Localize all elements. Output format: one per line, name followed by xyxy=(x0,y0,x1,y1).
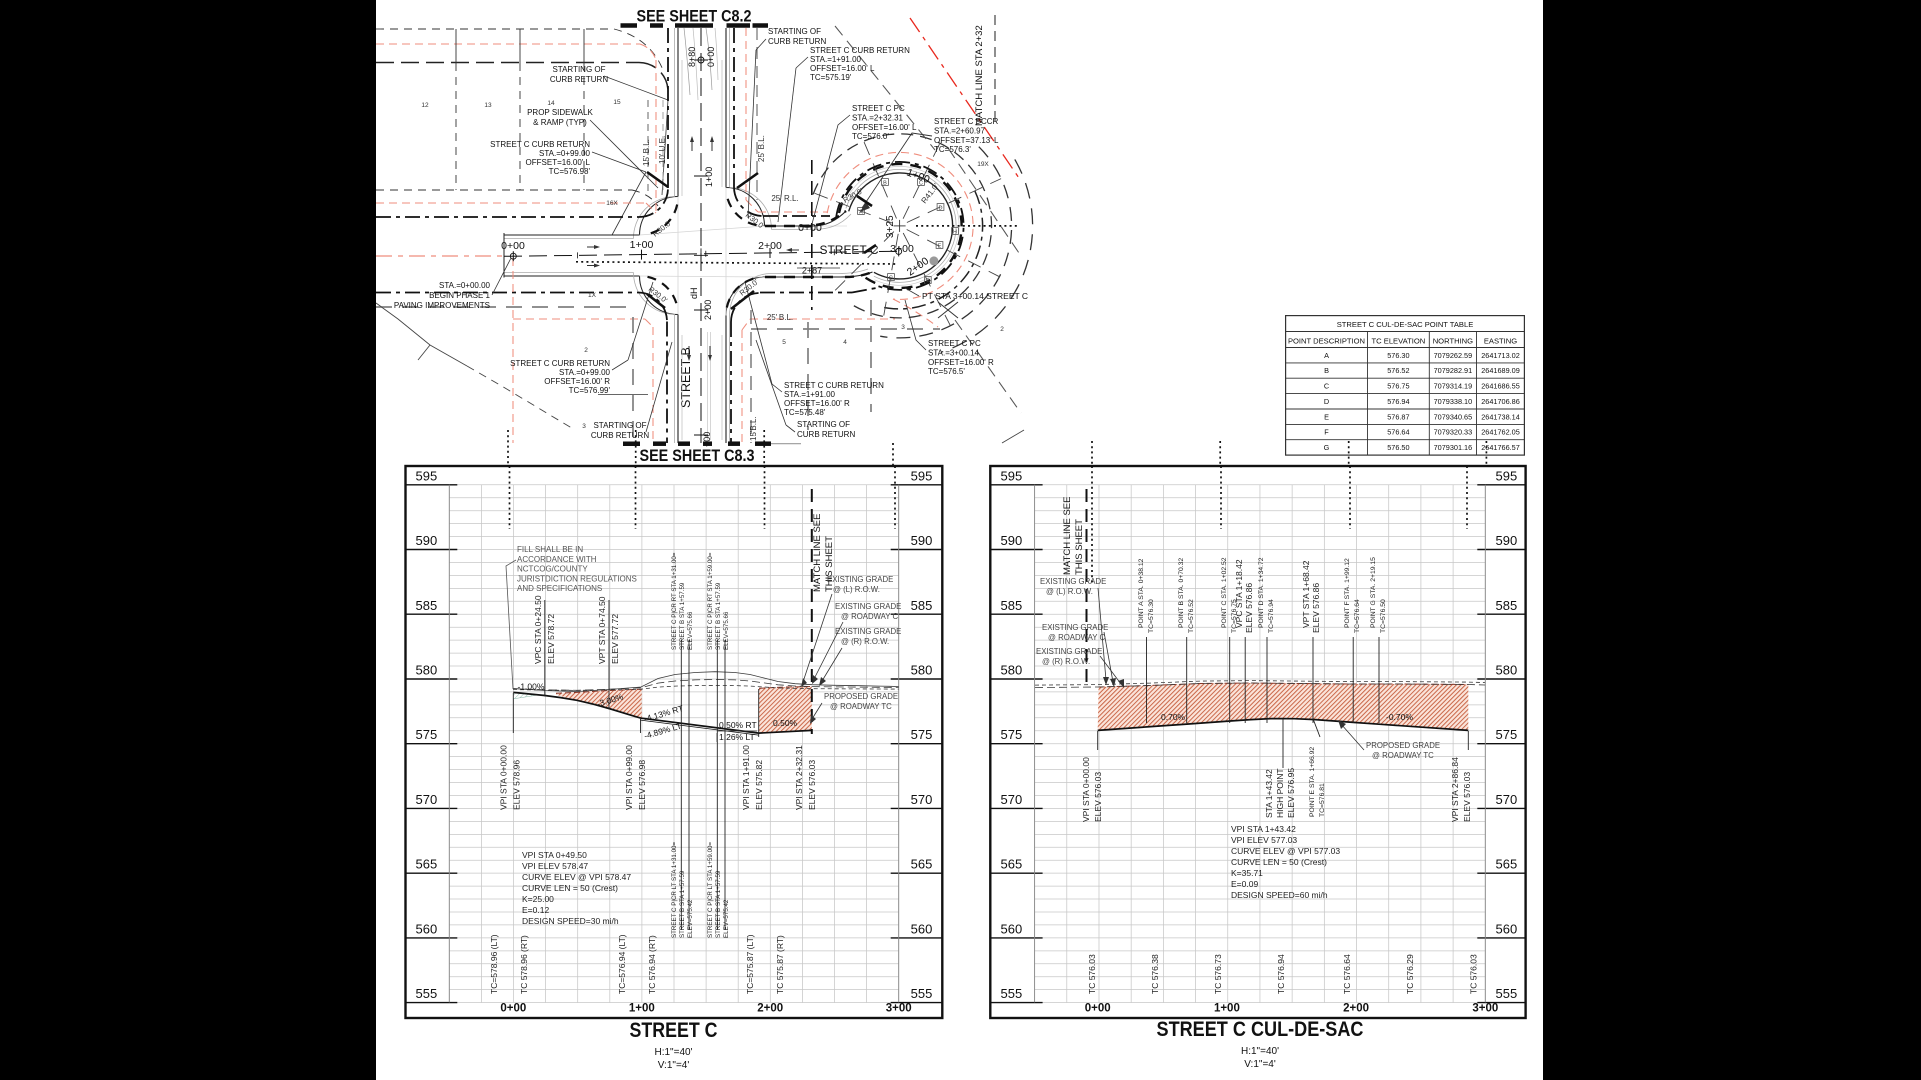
svg-text:585: 585 xyxy=(1001,598,1023,613)
svg-text:3: 3 xyxy=(582,423,586,430)
svg-text:CURVE ELEV @ VPI 577.03: CURVE ELEV @ VPI 577.03 xyxy=(1231,846,1340,856)
svg-text:STA.=1+91.00: STA.=1+91.00 xyxy=(784,390,836,399)
svg-text:585: 585 xyxy=(911,598,933,613)
svg-text:C: C xyxy=(1324,382,1329,391)
svg-text:CURB RETURN: CURB RETURN xyxy=(591,431,649,440)
svg-text:-0.70%: -0.70% xyxy=(1386,712,1413,722)
svg-text:TC=576.50: TC=576.50 xyxy=(1380,599,1387,633)
svg-text:3+00: 3+00 xyxy=(1472,1003,1498,1015)
svg-text:570: 570 xyxy=(1001,792,1023,807)
svg-text:H:1"=40': H:1"=40' xyxy=(655,1047,693,1058)
svg-text:TC=576.52: TC=576.52 xyxy=(1188,599,1195,633)
svg-text:570: 570 xyxy=(416,792,438,807)
svg-text:VPI STA 0+00.00: VPI STA 0+00.00 xyxy=(1081,757,1091,822)
svg-text:7079314.19: 7079314.19 xyxy=(1434,382,1473,391)
svg-text:@ ROADWAY C: @ ROADWAY C xyxy=(1048,633,1106,642)
svg-text:555: 555 xyxy=(1001,986,1023,1001)
svg-text:575: 575 xyxy=(911,727,933,742)
svg-text:580: 580 xyxy=(416,663,438,678)
svg-text:TC=576.94: TC=576.94 xyxy=(1268,599,1275,633)
svg-text:ELEV=575.42: ELEV=575.42 xyxy=(723,899,730,938)
svg-text:560: 560 xyxy=(1496,921,1518,936)
svg-text:VPI STA 0+00.00: VPI STA 0+00.00 xyxy=(499,745,509,810)
svg-text:CURB RETURN: CURB RETURN xyxy=(768,37,826,46)
svg-text:DESIGN SPEED=60 mi/h: DESIGN SPEED=60 mi/h xyxy=(1231,890,1328,900)
svg-text:VPI STA 1+91.00: VPI STA 1+91.00 xyxy=(741,745,751,810)
svg-text:7079320.33: 7079320.33 xyxy=(1434,428,1473,437)
svg-text:STREET B STA 1+57.59: STREET B STA 1+57.59 xyxy=(679,870,686,938)
svg-text:SEE SHEET C8.2: SEE SHEET C8.2 xyxy=(637,8,752,26)
svg-text:580: 580 xyxy=(911,663,933,678)
svg-text:G: G xyxy=(1324,443,1330,452)
svg-text:STREET C CURB RETURN: STREET C CURB RETURN xyxy=(490,140,590,149)
svg-text:576.64: 576.64 xyxy=(1387,428,1409,437)
svg-text:2641689.09: 2641689.09 xyxy=(1481,366,1520,375)
svg-text:TC=578.96 (LT): TC=578.96 (LT) xyxy=(489,934,499,994)
svg-text:VPC STA 0+24.50: VPC STA 0+24.50 xyxy=(533,595,543,664)
svg-text:STREET B: STREET B xyxy=(679,347,693,408)
svg-text:PROPOSED GRADE: PROPOSED GRADE xyxy=(824,692,898,701)
svg-text:576.94: 576.94 xyxy=(1387,397,1409,406)
svg-text:570: 570 xyxy=(911,792,933,807)
svg-text:595: 595 xyxy=(911,468,933,483)
svg-text:MATCH LINE SEE: MATCH LINE SEE xyxy=(812,514,823,592)
svg-text:555: 555 xyxy=(1496,986,1518,1001)
svg-text:STREET B STA 1+57.59: STREET B STA 1+57.59 xyxy=(715,582,722,650)
svg-text:1+00: 1+00 xyxy=(629,1003,655,1015)
svg-text:576.52: 576.52 xyxy=(1387,366,1409,375)
svg-text:STREET C P|CR LT STA 1+31.00=: STREET C P|CR LT STA 1+31.00= xyxy=(671,842,678,938)
svg-text:TC=576.3': TC=576.3' xyxy=(934,145,971,154)
svg-text:ELEV 578.96: ELEV 578.96 xyxy=(512,760,522,810)
svg-text:7079338.10: 7079338.10 xyxy=(1434,397,1473,406)
svg-text:TC 576.03: TC 576.03 xyxy=(1087,954,1097,994)
svg-text:TC=576.0': TC=576.0' xyxy=(852,132,889,141)
svg-text:15: 15 xyxy=(613,99,621,106)
svg-text:2+00: 2+00 xyxy=(758,240,782,252)
svg-text:ELEV 576.03: ELEV 576.03 xyxy=(1093,772,1103,822)
svg-text:3+25: 3+25 xyxy=(885,215,896,238)
svg-text:EASTING: EASTING xyxy=(1484,337,1517,346)
svg-text:VPI ELEV 577.03: VPI ELEV 577.03 xyxy=(1231,835,1297,845)
svg-text:576.75: 576.75 xyxy=(1387,382,1409,391)
svg-text:H:1"=40': H:1"=40' xyxy=(1241,1046,1279,1057)
svg-text:OFFSET=16.00' R: OFFSET=16.00' R xyxy=(928,358,994,367)
svg-text:560: 560 xyxy=(1001,921,1023,936)
svg-text:VPI STA 0+49.50: VPI STA 0+49.50 xyxy=(522,850,587,860)
svg-text:ELEV 575.82: ELEV 575.82 xyxy=(754,760,764,810)
svg-text:15' B.L.: 15' B.L. xyxy=(642,139,651,166)
svg-text:E=0.09: E=0.09 xyxy=(1231,879,1258,889)
svg-text:POINT D STA. 1+34.72: POINT D STA. 1+34.72 xyxy=(1258,557,1265,628)
svg-text:PAVING IMPROVEMENTS: PAVING IMPROVEMENTS xyxy=(394,301,490,310)
svg-text:STREET C P|CR RT STA 1+31.00=: STREET C P|CR RT STA 1+31.00= xyxy=(671,552,678,650)
svg-text:V:1"=4': V:1"=4' xyxy=(658,1060,690,1071)
svg-text:2: 2 xyxy=(584,347,588,354)
svg-text:0+00: 0+00 xyxy=(501,240,525,252)
svg-text:0+00: 0+00 xyxy=(798,222,822,234)
svg-text:555: 555 xyxy=(911,986,933,1001)
svg-text:0.50% RT: 0.50% RT xyxy=(719,720,757,730)
svg-text:1X: 1X xyxy=(588,292,597,299)
svg-text:ELEV 576.03: ELEV 576.03 xyxy=(1462,772,1472,822)
svg-text:EXISTING GRADE: EXISTING GRADE xyxy=(1040,577,1106,586)
svg-text:CURB RETURN: CURB RETURN xyxy=(797,430,855,439)
svg-text:THIS SHEET: THIS SHEET xyxy=(1074,519,1085,575)
svg-text:ELEV 578.72: ELEV 578.72 xyxy=(546,614,556,664)
svg-text:STREET C CURB RETURN: STREET C CURB RETURN xyxy=(784,381,884,390)
svg-text:TC 576.94: TC 576.94 xyxy=(1276,954,1286,994)
svg-text:VPC STA 1+18.42: VPC STA 1+18.42 xyxy=(1234,559,1244,628)
svg-text:TC=576.99': TC=576.99' xyxy=(569,386,611,395)
svg-text:STREET C: STREET C xyxy=(630,1019,718,1042)
svg-text:D: D xyxy=(939,205,943,211)
svg-text:BEGIN PHASE 1: BEGIN PHASE 1 xyxy=(429,291,490,300)
svg-text:STA 1+43.42: STA 1+43.42 xyxy=(1264,769,1274,818)
svg-text:2641762.05: 2641762.05 xyxy=(1481,428,1520,437)
svg-text:SEE SHEET C8.3: SEE SHEET C8.3 xyxy=(640,447,755,465)
svg-text:2+00: 2+00 xyxy=(1343,1003,1369,1015)
svg-text:EXISTING GRADE: EXISTING GRADE xyxy=(827,575,893,584)
svg-text:OFFSET=16.00' L: OFFSET=16.00' L xyxy=(810,64,875,73)
svg-text:ELEV 576.86: ELEV 576.86 xyxy=(1244,583,1254,633)
svg-text:565: 565 xyxy=(1001,857,1023,872)
svg-text:POINT DESCRIPTION: POINT DESCRIPTION xyxy=(1288,337,1365,346)
svg-text:STA.=2+60.97: STA.=2+60.97 xyxy=(934,127,986,136)
svg-text:4: 4 xyxy=(843,339,847,346)
svg-text:DESIGN SPEED=30 mi/h: DESIGN SPEED=30 mi/h xyxy=(522,916,619,926)
svg-text:8+80: 8+80 xyxy=(687,47,697,67)
svg-text:576.30: 576.30 xyxy=(1387,351,1409,360)
svg-text:12: 12 xyxy=(421,102,429,109)
svg-text:STA.=3+00.14: STA.=3+00.14 xyxy=(928,349,980,358)
svg-text:-1.00%: -1.00% xyxy=(518,682,545,692)
svg-text:STARTING OF: STARTING OF xyxy=(797,420,850,429)
svg-text:25' B.L.: 25' B.L. xyxy=(757,135,766,162)
svg-text:3+00: 3+00 xyxy=(890,243,914,255)
svg-text:1+00: 1+00 xyxy=(704,167,714,187)
svg-text:TC=576.5': TC=576.5' xyxy=(928,367,965,376)
svg-text:STREET C CURB RETURN: STREET C CURB RETURN xyxy=(810,46,910,55)
svg-text:TC=575.19': TC=575.19' xyxy=(810,73,852,82)
svg-text:585: 585 xyxy=(1496,598,1518,613)
svg-text:595: 595 xyxy=(1496,468,1518,483)
svg-text:OFFSET=16.00' L: OFFSET=16.00' L xyxy=(852,123,917,132)
svg-text:TC 576.73: TC 576.73 xyxy=(1213,954,1223,994)
svg-text:OFFSET=37.13' L: OFFSET=37.13' L xyxy=(934,136,999,145)
svg-text:576.87: 576.87 xyxy=(1387,412,1409,421)
svg-text:@ ROADWAY C: @ ROADWAY C xyxy=(841,612,899,621)
svg-text:@ (L) R.O.W.: @ (L) R.O.W. xyxy=(1046,587,1093,596)
svg-text:F: F xyxy=(1324,428,1329,437)
svg-text:590: 590 xyxy=(1496,533,1518,548)
svg-text:TC=576.64: TC=576.64 xyxy=(1354,599,1361,633)
svg-text:3+00: 3+00 xyxy=(886,1003,912,1015)
svg-text:VPI STA 0+99.00: VPI STA 0+99.00 xyxy=(624,745,634,810)
svg-text:595: 595 xyxy=(416,468,438,483)
svg-text:TC=576.94 (LT): TC=576.94 (LT) xyxy=(617,934,627,994)
svg-text:POINT B STA. 0+70.32: POINT B STA. 0+70.32 xyxy=(1178,558,1185,628)
svg-text:STA.=1+91.00: STA.=1+91.00 xyxy=(810,55,862,64)
svg-text:14: 14 xyxy=(547,100,555,107)
svg-text:TC 576.29: TC 576.29 xyxy=(1405,954,1415,994)
svg-text:STARTING OF: STARTING OF xyxy=(768,27,821,36)
svg-text:575: 575 xyxy=(1001,727,1023,742)
svg-text:POINT E STA. 1+66.92: POINT E STA. 1+66.92 xyxy=(1309,747,1316,817)
svg-text:E: E xyxy=(938,243,942,249)
svg-text:ELEV 577.72: ELEV 577.72 xyxy=(610,614,620,664)
svg-text:575: 575 xyxy=(1496,727,1518,742)
svg-text:STA.=2+32.31: STA.=2+32.31 xyxy=(852,114,904,123)
svg-text:& RAMP (TYP): & RAMP (TYP) xyxy=(533,118,587,127)
svg-text:13: 13 xyxy=(484,102,492,109)
svg-text:STARTING OF: STARTING OF xyxy=(593,421,646,430)
svg-text:AND SPECIFICATIONS: AND SPECIFICATIONS xyxy=(517,584,602,593)
svg-text:19X: 19X xyxy=(977,161,989,168)
svg-text:0.70%: 0.70% xyxy=(1161,712,1186,722)
svg-text:3: 3 xyxy=(901,324,905,331)
svg-text:VPI STA 2+86.84: VPI STA 2+86.84 xyxy=(1450,757,1460,822)
svg-text:STREET C PC: STREET C PC xyxy=(928,339,981,348)
svg-text:TC 576.03: TC 576.03 xyxy=(1469,954,1479,994)
svg-text:25' B.L.: 25' B.L. xyxy=(767,313,793,322)
svg-text:STREET C PC: STREET C PC xyxy=(852,104,905,113)
svg-text:@ ROADWAY TC: @ ROADWAY TC xyxy=(830,702,892,711)
svg-text:2+00: 2+00 xyxy=(703,300,713,320)
svg-text:0+00: 0+00 xyxy=(1085,1003,1111,1015)
svg-text:TC 575.87 (RT): TC 575.87 (RT) xyxy=(775,935,785,994)
svg-text:2: 2 xyxy=(1000,326,1004,333)
svg-text:TC=575.87 (LT): TC=575.87 (LT) xyxy=(745,934,755,994)
svg-text:A: A xyxy=(1324,351,1329,360)
svg-text:555: 555 xyxy=(416,986,438,1001)
svg-text:10' U.E.: 10' U.E. xyxy=(658,136,667,164)
svg-text:E: E xyxy=(1324,412,1329,421)
svg-text:TC=576.81: TC=576.81 xyxy=(1319,783,1326,817)
svg-text:PROPOSED GRADE: PROPOSED GRADE xyxy=(1366,741,1440,750)
svg-text:K=35.71: K=35.71 xyxy=(1231,868,1263,878)
svg-text:7079340.65: 7079340.65 xyxy=(1434,412,1473,421)
svg-text:@ (R) R.O.W.: @ (R) R.O.W. xyxy=(1042,657,1090,666)
svg-text:EXISTING GRADE: EXISTING GRADE xyxy=(1036,647,1102,656)
svg-text:2641686.55: 2641686.55 xyxy=(1481,382,1520,391)
svg-text:560: 560 xyxy=(416,921,438,936)
svg-text:590: 590 xyxy=(911,533,933,548)
svg-text:ELEV=575.42: ELEV=575.42 xyxy=(687,899,694,938)
svg-text:565: 565 xyxy=(416,857,438,872)
svg-text:B: B xyxy=(1324,366,1329,375)
svg-text:TC 576.94 (RT): TC 576.94 (RT) xyxy=(647,935,657,994)
svg-text:2641713.02: 2641713.02 xyxy=(1481,351,1520,360)
svg-text:B: B xyxy=(883,180,887,186)
svg-text:VPT STA 0+74.50: VPT STA 0+74.50 xyxy=(597,596,607,664)
svg-text:CURVE LEN = 50 (Crest): CURVE LEN = 50 (Crest) xyxy=(522,883,618,893)
svg-text:560: 560 xyxy=(911,921,933,936)
svg-text:D: D xyxy=(1324,397,1329,406)
svg-text:0+00: 0+00 xyxy=(500,1003,526,1015)
svg-text:STREET B STA 1+57.59: STREET B STA 1+57.59 xyxy=(679,582,686,650)
svg-text:VPI ELEV 578.47: VPI ELEV 578.47 xyxy=(522,861,588,871)
svg-text:575: 575 xyxy=(416,727,438,742)
svg-text:ELEV=575.66: ELEV=575.66 xyxy=(723,611,730,650)
svg-text:ACCORDANCE WITH: ACCORDANCE WITH xyxy=(517,555,597,564)
svg-text:7079262.59: 7079262.59 xyxy=(1434,351,1473,360)
svg-text:CURB RETURN: CURB RETURN xyxy=(550,75,608,84)
svg-text:570: 570 xyxy=(1496,792,1518,807)
svg-text:dH: dH xyxy=(689,287,699,299)
svg-text:1.26% LT: 1.26% LT xyxy=(719,732,755,742)
svg-text:V:1"=4': V:1"=4' xyxy=(1244,1059,1276,1070)
svg-text:VPI STA 2+32.31: VPI STA 2+32.31 xyxy=(794,745,804,810)
svg-text:VPT STA 1+68.42: VPT STA 1+68.42 xyxy=(1301,560,1311,628)
svg-text:MATCH LINE SEE: MATCH LINE SEE xyxy=(1062,497,1073,575)
svg-text:TC ELEVATION: TC ELEVATION xyxy=(1372,337,1426,346)
svg-text:NORTHING: NORTHING xyxy=(1433,337,1473,346)
svg-text:STREET C CUL-DE-SAC: STREET C CUL-DE-SAC xyxy=(1157,1018,1364,1041)
svg-text:STARTING OF: STARTING OF xyxy=(552,65,605,74)
svg-text:STA.=0+00.00: STA.=0+00.00 xyxy=(439,281,491,290)
svg-text:7079282.91: 7079282.91 xyxy=(1434,366,1473,375)
svg-text:0.50%: 0.50% xyxy=(773,718,798,728)
svg-text:JURISTDICTION REGULATIONS: JURISTDICTION REGULATIONS xyxy=(517,574,637,583)
svg-text:PT STA 3+00.14 STREET C: PT STA 3+00.14 STREET C xyxy=(922,291,1028,301)
svg-text:0+00: 0+00 xyxy=(706,47,716,67)
svg-text:E=0.12: E=0.12 xyxy=(522,905,549,915)
svg-text:1+00: 1+00 xyxy=(1214,1003,1240,1015)
svg-text:EXISTING GRADE: EXISTING GRADE xyxy=(835,602,901,611)
svg-text:565: 565 xyxy=(911,857,933,872)
svg-text:TC 578.96 (RT): TC 578.96 (RT) xyxy=(519,935,529,994)
svg-text:STREET C P|CR RT STA 1+59.00=: STREET C P|CR RT STA 1+59.00= xyxy=(707,552,714,650)
svg-text:STREET C P|CR LT STA 1+59.00=: STREET C P|CR LT STA 1+59.00= xyxy=(707,842,714,938)
svg-text:POINT C STA. 1+02.52: POINT C STA. 1+02.52 xyxy=(1221,557,1228,628)
svg-text:595: 595 xyxy=(1001,468,1023,483)
svg-text:K=25.00: K=25.00 xyxy=(522,894,554,904)
svg-text:CURVE LEN = 50 (Crest): CURVE LEN = 50 (Crest) xyxy=(1231,857,1327,867)
svg-text:5: 5 xyxy=(782,339,786,346)
svg-text:ELEV 576.86: ELEV 576.86 xyxy=(1311,583,1321,633)
svg-text:STA.=0+99.00: STA.=0+99.00 xyxy=(539,149,591,158)
svg-text:TC=576.98': TC=576.98' xyxy=(549,167,591,176)
svg-text:ELEV 576.98: ELEV 576.98 xyxy=(637,760,647,810)
svg-text:@ (R) R.O.W.: @ (R) R.O.W. xyxy=(841,637,889,646)
svg-text:ELEV=575.66: ELEV=575.66 xyxy=(687,611,694,650)
svg-text:1+00: 1+00 xyxy=(630,239,654,251)
svg-text:STREET C CURB RETURN: STREET C CURB RETURN xyxy=(510,359,610,368)
svg-text:2641738.14: 2641738.14 xyxy=(1481,412,1520,421)
svg-text:HIGH POINT: HIGH POINT xyxy=(1275,768,1285,818)
svg-text:576.50: 576.50 xyxy=(1387,443,1409,452)
svg-text:POINT F STA. 1+99.12: POINT F STA. 1+99.12 xyxy=(1344,558,1351,628)
svg-text:@ ROADWAY TC: @ ROADWAY TC xyxy=(1372,751,1434,760)
svg-text:STA.=0+99.00: STA.=0+99.00 xyxy=(559,368,611,377)
svg-text:H: H xyxy=(953,229,957,235)
svg-text:STREET C PCCR: STREET C PCCR xyxy=(934,117,999,126)
svg-text:OFFSET=16.00' L: OFFSET=16.00' L xyxy=(526,158,591,167)
svg-text:FILL SHALL BE IN: FILL SHALL BE IN xyxy=(517,545,583,554)
svg-text:TC 576.64: TC 576.64 xyxy=(1342,954,1352,994)
svg-text:2641706.86: 2641706.86 xyxy=(1481,397,1520,406)
svg-text:ELEV 576.03: ELEV 576.03 xyxy=(807,760,817,810)
svg-text:STREET B STA 1+57.59: STREET B STA 1+57.59 xyxy=(715,870,722,938)
svg-text:580: 580 xyxy=(1496,663,1518,678)
svg-text:16X: 16X xyxy=(606,200,618,207)
svg-text:MATCH LINE STA 2+32: MATCH LINE STA 2+32 xyxy=(974,25,985,126)
svg-text:STREET C CUL-DE-SAC POINT TABL: STREET C CUL-DE-SAC POINT TABLE xyxy=(1337,320,1474,329)
svg-text:7079301.16: 7079301.16 xyxy=(1434,443,1473,452)
svg-text:565: 565 xyxy=(1496,857,1518,872)
svg-text:OFFSET=16.00' R: OFFSET=16.00' R xyxy=(544,377,610,386)
svg-text:2+00: 2+00 xyxy=(757,1003,783,1015)
svg-text:POINT A STA. 0+38.12: POINT A STA. 0+38.12 xyxy=(1138,558,1145,628)
svg-text:585: 585 xyxy=(416,598,438,613)
svg-text:TC=575.48': TC=575.48' xyxy=(784,408,826,417)
svg-text:590: 590 xyxy=(1001,533,1023,548)
svg-text:590: 590 xyxy=(416,533,438,548)
svg-text:15'B.L.: 15'B.L. xyxy=(749,416,758,441)
svg-text:TC 576.38: TC 576.38 xyxy=(1150,954,1160,994)
svg-text:25' R.L.: 25' R.L. xyxy=(771,194,798,203)
svg-text:ELEV 576.95: ELEV 576.95 xyxy=(1286,768,1296,818)
svg-text:580: 580 xyxy=(1001,663,1023,678)
svg-text:NCTCOG/COUNTY: NCTCOG/COUNTY xyxy=(517,565,588,574)
svg-text:VPI STA 1+43.42: VPI STA 1+43.42 xyxy=(1231,824,1296,834)
svg-text:STREET C: STREET C xyxy=(820,245,879,257)
svg-text:EXISTING GRADE: EXISTING GRADE xyxy=(1042,623,1108,632)
svg-text:G: G xyxy=(889,275,893,281)
svg-text:OFFSET=16.00' R: OFFSET=16.00' R xyxy=(784,399,850,408)
svg-text:@ (L) R.O.W.: @ (L) R.O.W. xyxy=(833,585,880,594)
svg-text:TC=576.30: TC=576.30 xyxy=(1148,599,1155,633)
svg-text:CURVE ELEV @ VPI 578.47: CURVE ELEV @ VPI 578.47 xyxy=(522,872,631,882)
svg-text:POINT G STA. 2+19.15: POINT G STA. 2+19.15 xyxy=(1370,557,1377,628)
svg-text:EXISTING GRADE: EXISTING GRADE xyxy=(835,627,901,636)
svg-text:PROP SIDEWALK: PROP SIDEWALK xyxy=(527,108,593,117)
